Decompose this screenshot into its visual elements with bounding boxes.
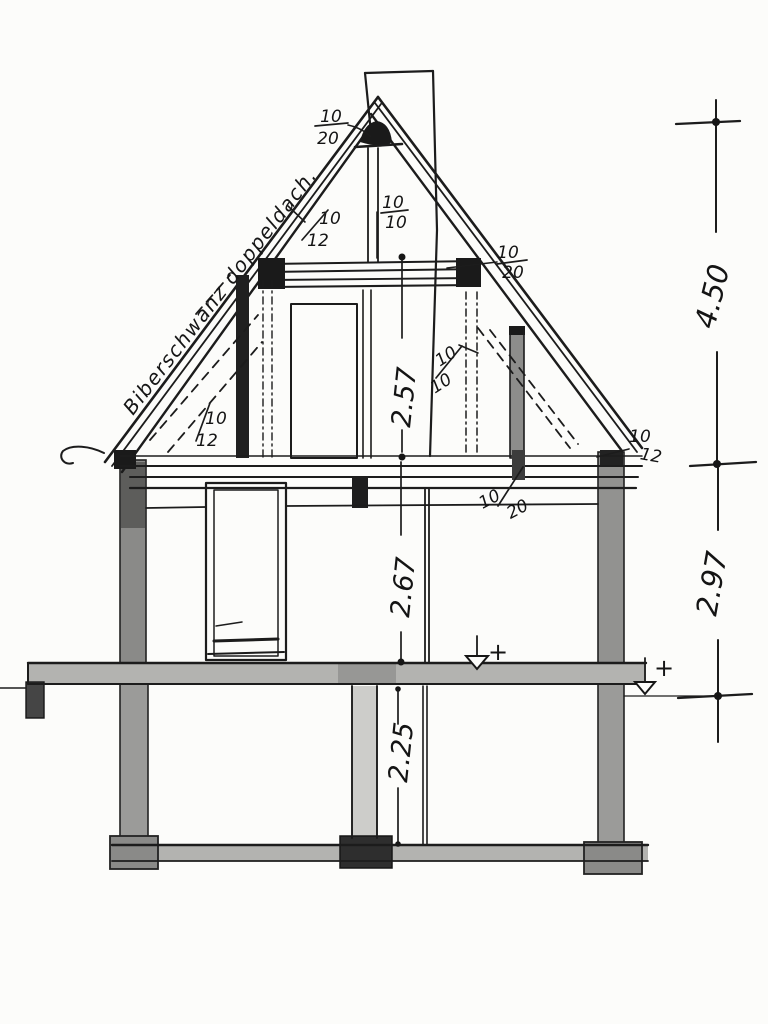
plus-sign: +: [654, 654, 674, 682]
dim-label-attic: 2.57: [386, 366, 423, 429]
dimension-upper-floor: 2.67: [385, 462, 422, 666]
sketch-page: 2.57 2.67 2.25 4.50 2.97 +: [0, 0, 768, 1024]
dim-label-floor-zone: 2.97: [689, 548, 734, 618]
collar-line-1: [268, 261, 478, 264]
pitch-den: 12: [638, 444, 663, 467]
pitch-num: 10: [205, 409, 227, 429]
center-pier-fill: [352, 686, 377, 838]
dim-label-roof-zone: 4.50: [688, 261, 737, 332]
dim-dot: [398, 659, 405, 666]
level-marker-upper: +: [466, 636, 508, 669]
house-section-drawing: 2.57 2.67 2.25 4.50 2.97 +: [0, 0, 768, 1024]
pitch-annotation-right-mid: 10 10: [427, 343, 478, 399]
plus-sign: +: [488, 638, 508, 666]
wall-rail-left: [146, 507, 206, 508]
attic-door: [291, 304, 357, 458]
door-threshold: [208, 652, 284, 654]
collar-line-3: [270, 278, 476, 280]
door-frame-inner: [214, 490, 278, 656]
floor-stud-blob: [352, 477, 368, 508]
pitch-annotation-center: 10 10: [377, 193, 408, 258]
dimension-basement: 2.25: [383, 686, 420, 847]
basement: [112, 686, 648, 861]
collar-line-2: [268, 269, 478, 272]
right-wall-basement: [598, 684, 624, 844]
pitch-num: 10: [432, 343, 461, 372]
dim-tick-middle: [690, 462, 756, 466]
dim-tick-middle-dot: [713, 460, 721, 468]
right-knee-post: [510, 333, 524, 458]
pitch-den: 12: [196, 431, 218, 451]
pitch-den: 20: [502, 263, 524, 283]
pitch-num: 10: [475, 486, 503, 514]
upper-floor: [146, 483, 598, 663]
dim-label-upper-floor: 2.67: [385, 556, 422, 619]
right-footing: [584, 842, 642, 874]
collar-right-joint-blob: [456, 258, 481, 287]
collar-line-4: [270, 285, 476, 287]
dimension-line-right: 4.50 2.97: [676, 100, 756, 742]
dim-dot2: [395, 841, 401, 847]
ground-slab-dark-patch: [338, 663, 396, 684]
level-triangle-icon: [635, 682, 655, 694]
pitch-num: 10: [319, 209, 341, 229]
right-wall-top-blob: [600, 450, 623, 467]
dim-tick-top-dot: [712, 118, 720, 126]
dim-tick-bottom-dot: [714, 692, 722, 700]
left-footing: [110, 836, 158, 869]
pitch-den: 12: [307, 231, 329, 251]
center-footing: [340, 836, 392, 868]
door-bottom-rail-2: [214, 639, 278, 641]
ground-slab-fill: [28, 663, 646, 684]
attic-floor: [120, 450, 642, 508]
left-gutter-hook: [61, 447, 104, 464]
pitch-den: 20: [503, 496, 531, 524]
dim-label-basement: 2.25: [383, 721, 420, 784]
door-bottom-rail-1: [216, 622, 242, 626]
right-wall-upper: [598, 452, 624, 668]
terrace-step-block: [26, 682, 44, 718]
leader-line: [459, 345, 478, 353]
wall-rail-right: [286, 504, 598, 506]
chimney-right-edge: [430, 71, 437, 456]
pitch-den: 10: [385, 213, 407, 233]
pitch-den: 20: [317, 129, 339, 149]
pitch-num: 10: [629, 427, 651, 447]
left-knee-post: [236, 275, 249, 458]
left-wall-basement: [120, 684, 148, 840]
collar-beam: [258, 258, 481, 289]
pitch-annotation-left-lower: 10 12: [196, 403, 227, 451]
dim-dot2: [399, 454, 406, 461]
dim-tick-top: [676, 121, 740, 124]
roof: [61, 97, 642, 472]
chimney-top: [365, 71, 433, 73]
pitch-num: 10: [497, 243, 519, 263]
right-knee-post-cap: [509, 326, 525, 335]
door-frame-outer: [206, 483, 286, 660]
left-wall-dark-top: [121, 462, 145, 528]
